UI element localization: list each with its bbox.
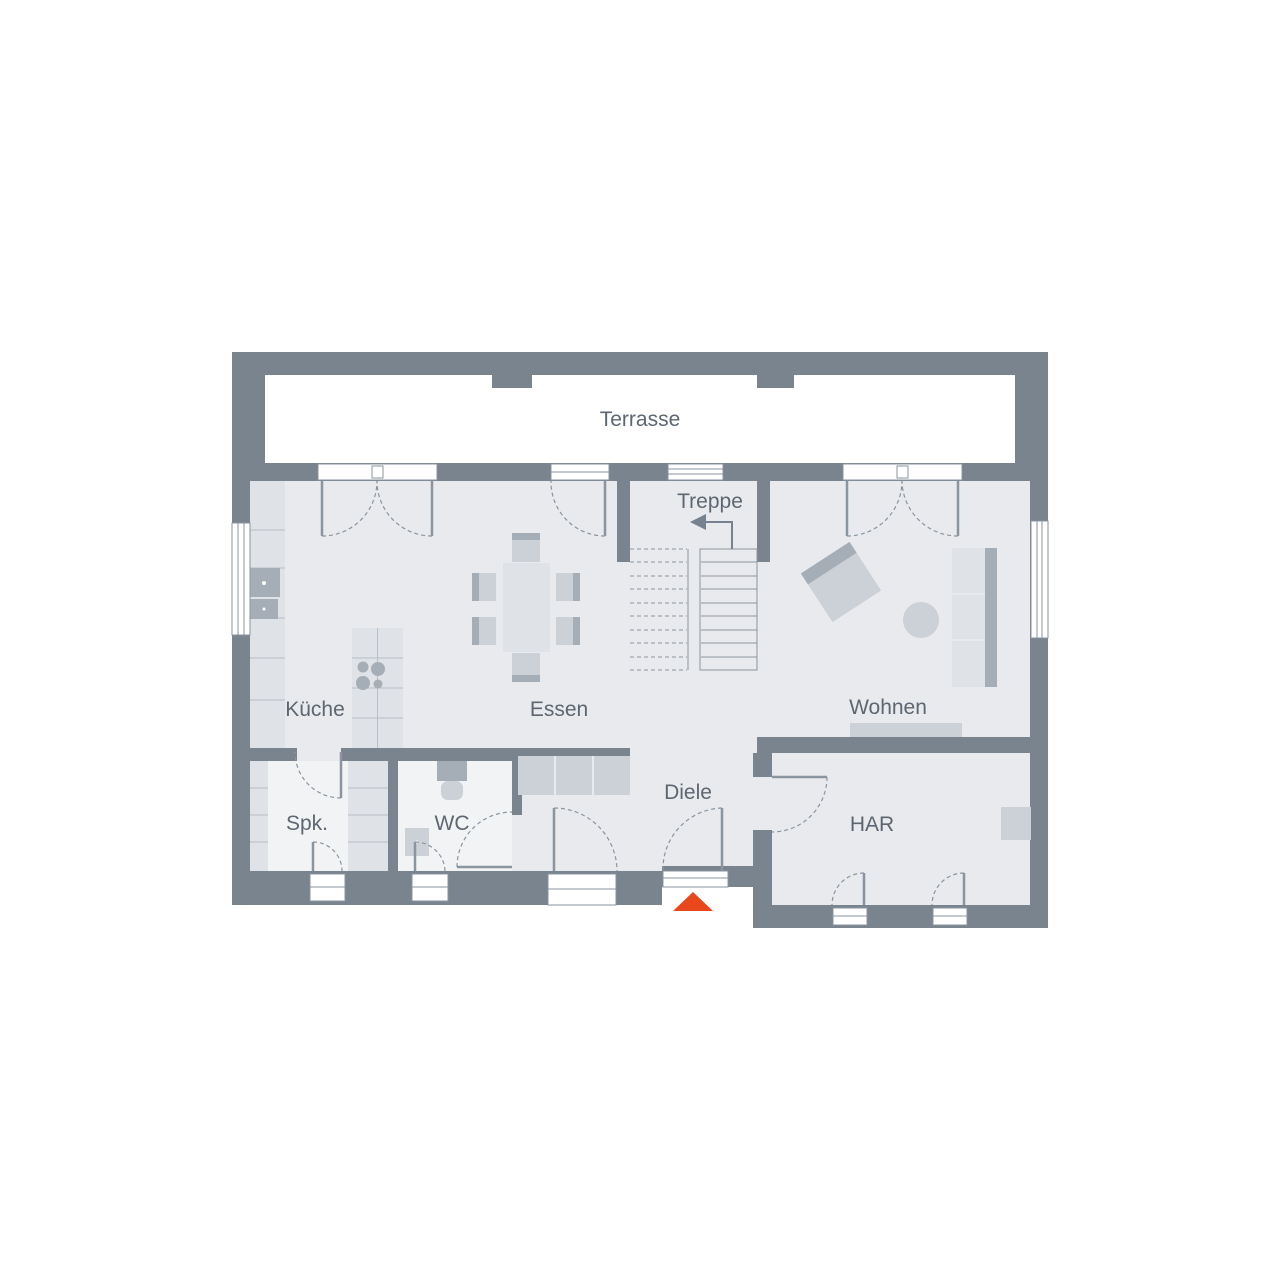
terrace-pillar-right	[757, 352, 794, 388]
kitchen-island	[352, 628, 403, 748]
label-wohnen: Wohnen	[849, 696, 927, 719]
label-diele: Diele	[664, 781, 712, 804]
stair-window	[668, 464, 723, 480]
label-wc: WC	[435, 812, 470, 835]
label-spk: Spk.	[286, 812, 328, 835]
har-door-opening	[753, 777, 772, 830]
terrace-left-wall	[232, 352, 265, 481]
kitchen-window	[232, 523, 250, 635]
label-kueche: Küche	[285, 698, 345, 721]
har-floor-extension	[772, 871, 1030, 905]
spk-wc-wall	[388, 748, 398, 871]
spk-shelf-left	[250, 761, 268, 871]
living-window	[1031, 521, 1048, 638]
terrace-top-wall	[232, 352, 1048, 375]
har-appliance	[1001, 807, 1031, 840]
floor-plan-drawing: Terrasse Treppe Küche Essen Wohnen Spk. …	[0, 0, 1280, 1280]
toilet-cistern	[437, 761, 467, 781]
spk-door-opening	[297, 748, 341, 761]
floor-plan: Terrasse Treppe Küche Essen Wohnen Spk. …	[0, 0, 1280, 1280]
entrance-arrow-icon	[673, 892, 713, 911]
dining-chair	[556, 573, 580, 601]
dining-chair	[472, 617, 496, 645]
stair-right-wall	[757, 478, 770, 562]
label-treppe: Treppe	[677, 490, 743, 513]
sofa	[952, 548, 997, 687]
dining-chair	[472, 573, 496, 601]
terrace-pillar-left	[492, 352, 532, 388]
dining-chair	[512, 533, 540, 562]
dining-chair	[556, 617, 580, 645]
terrace-right-wall	[1015, 352, 1048, 481]
label-har: HAR	[850, 813, 894, 836]
sideboard	[850, 723, 962, 737]
label-terrasse: Terrasse	[600, 408, 681, 431]
dining-table	[503, 563, 550, 652]
diele-wardrobe	[518, 756, 630, 795]
stair-left-wall	[617, 478, 630, 562]
dining-chair	[512, 653, 540, 682]
har-bottom-wall	[753, 905, 1048, 928]
wohnen-har-wall	[757, 737, 1030, 753]
label-essen: Essen	[530, 698, 588, 721]
side-table	[903, 602, 939, 638]
toilet-bowl	[441, 781, 463, 800]
spk-shelf-right	[348, 761, 388, 871]
